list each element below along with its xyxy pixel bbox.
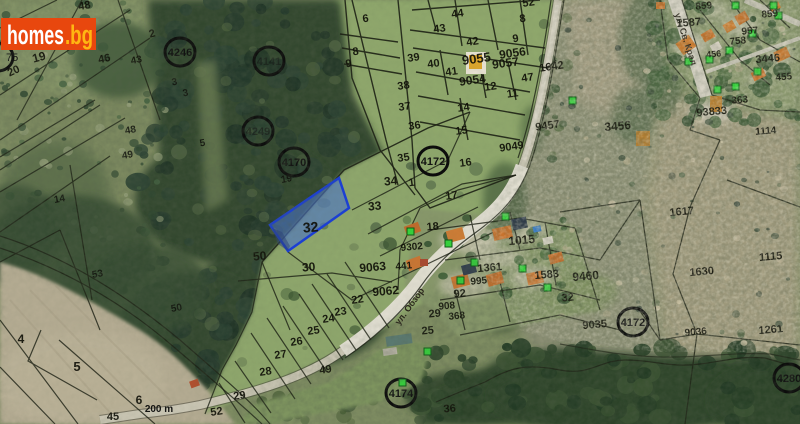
svg-text:.bg: .bg bbox=[65, 20, 93, 50]
svg-text:homes: homes bbox=[7, 20, 64, 50]
